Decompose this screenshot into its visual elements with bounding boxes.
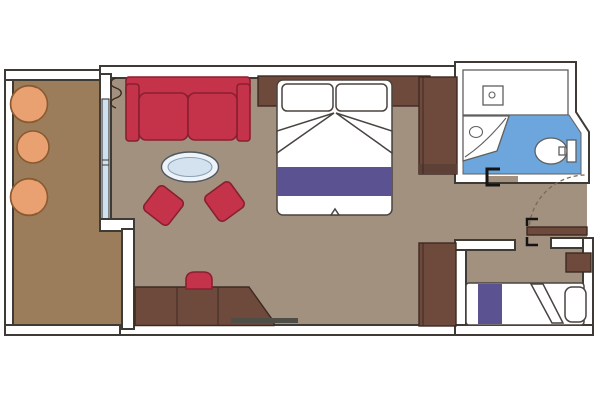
sofa-cushion (188, 93, 237, 140)
sofa-arm-right (237, 84, 250, 141)
pillow (336, 84, 387, 111)
floor-plan-drawing (0, 0, 600, 400)
sofa (126, 77, 250, 141)
nook-top-left-wall (455, 240, 515, 250)
sink (483, 86, 503, 105)
sofa-bed-runner (478, 284, 502, 324)
sofa-arm-left (126, 84, 139, 141)
vanity-counter (463, 70, 568, 115)
wardrobe (419, 77, 457, 174)
side-table (566, 253, 591, 272)
storage-unit (419, 243, 456, 326)
balcony-top-wall (5, 70, 105, 80)
oval-table-inner (168, 158, 212, 177)
toilet-hinge (559, 147, 565, 155)
wall-shelf (231, 318, 298, 323)
desk-stool (186, 272, 212, 289)
wardrobe-base (419, 164, 457, 174)
toilet-tank (567, 140, 576, 162)
main-bottom-wall (120, 325, 462, 335)
sofa-cushion (139, 93, 188, 140)
balcony-bottom-wall (5, 325, 127, 335)
entrance-door-leaf (527, 227, 587, 235)
pillow (282, 84, 333, 111)
cabin-floor-plan (0, 0, 600, 400)
nook-bottom-wall (455, 325, 593, 335)
sofa-bed-pillow (565, 287, 586, 322)
bathroom (455, 62, 589, 185)
balcony-round-table (17, 131, 49, 163)
divider-lower-wall (122, 229, 134, 329)
bed-runner (277, 167, 392, 196)
bathroom-doorway (488, 176, 518, 182)
